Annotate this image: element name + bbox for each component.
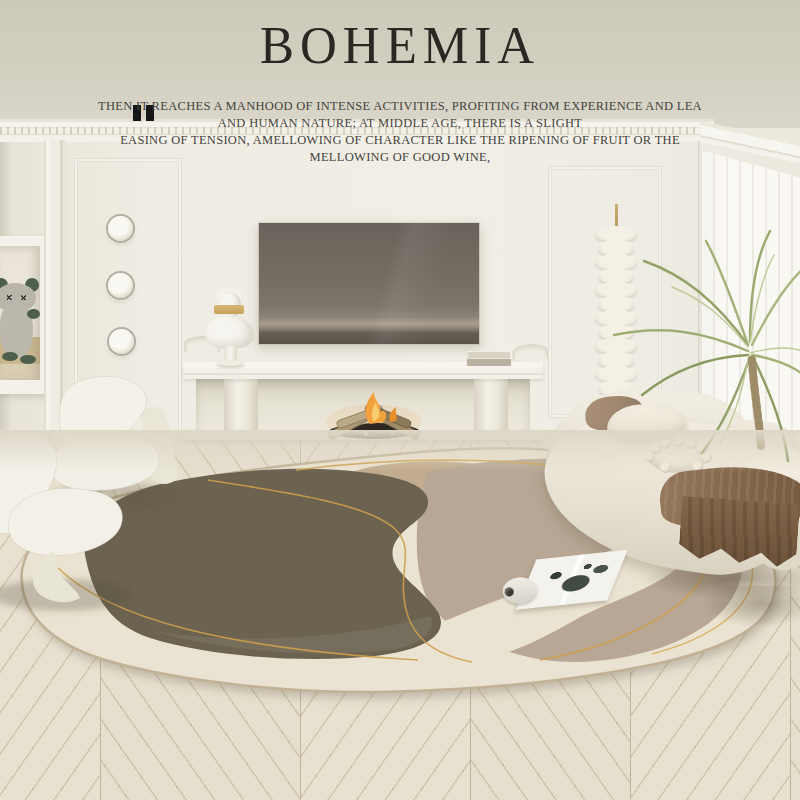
palm-frond [752,263,800,345]
brand-title: BOHEMIA [0,15,800,75]
magazine-pages [516,550,628,610]
magazine-artwork [516,550,628,610]
palm-frond [614,330,748,351]
quote-line: EASING OF TENSION, AMELLOWING OF CHARACT… [0,132,800,149]
palm-frond [642,355,748,395]
quote-line: THEN IT REACHES A MANHOOD OF INTENSE ACT… [0,98,800,115]
palm-plant [552,200,800,466]
quote-line: AND HUMAN NATURE; AT MIDDLE AGE, THERE I… [0,115,800,132]
palm-frond-light [750,348,800,355]
sofa-shadow [703,586,800,628]
palm-frond-light [750,255,774,343]
quote-line: MELLOWING OF GOOD WINE, [0,149,800,166]
quote-block: THEN IT REACHES A MANHOOD OF INTENSE ACT… [0,98,800,166]
bohemia-rug-lifestyle-image: BOHEMIA THEN IT REACHES A MANHOOD OF INT… [0,0,800,800]
palm-frond [706,241,748,345]
